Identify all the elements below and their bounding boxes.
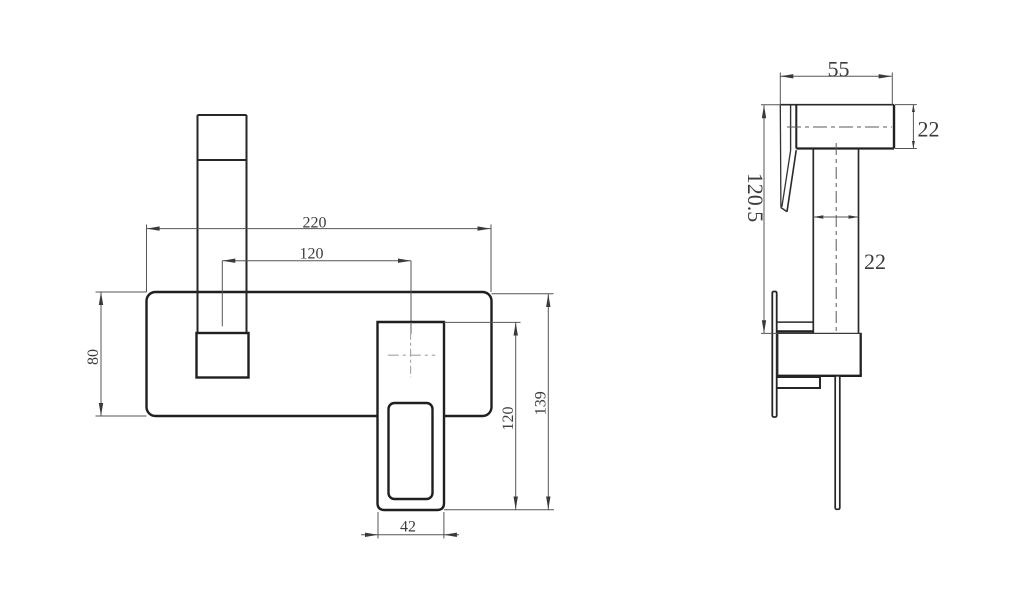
svg-text:22: 22 bbox=[864, 249, 886, 274]
svg-text:120: 120 bbox=[500, 407, 517, 431]
svg-text:42: 42 bbox=[400, 519, 416, 536]
svg-text:55: 55 bbox=[828, 57, 850, 82]
svg-text:80: 80 bbox=[85, 349, 102, 365]
svg-text:22: 22 bbox=[918, 116, 940, 141]
svg-text:120: 120 bbox=[300, 246, 324, 263]
svg-text:220: 220 bbox=[303, 215, 327, 232]
svg-text:139: 139 bbox=[533, 391, 550, 415]
svg-text:120.5: 120.5 bbox=[743, 173, 768, 223]
